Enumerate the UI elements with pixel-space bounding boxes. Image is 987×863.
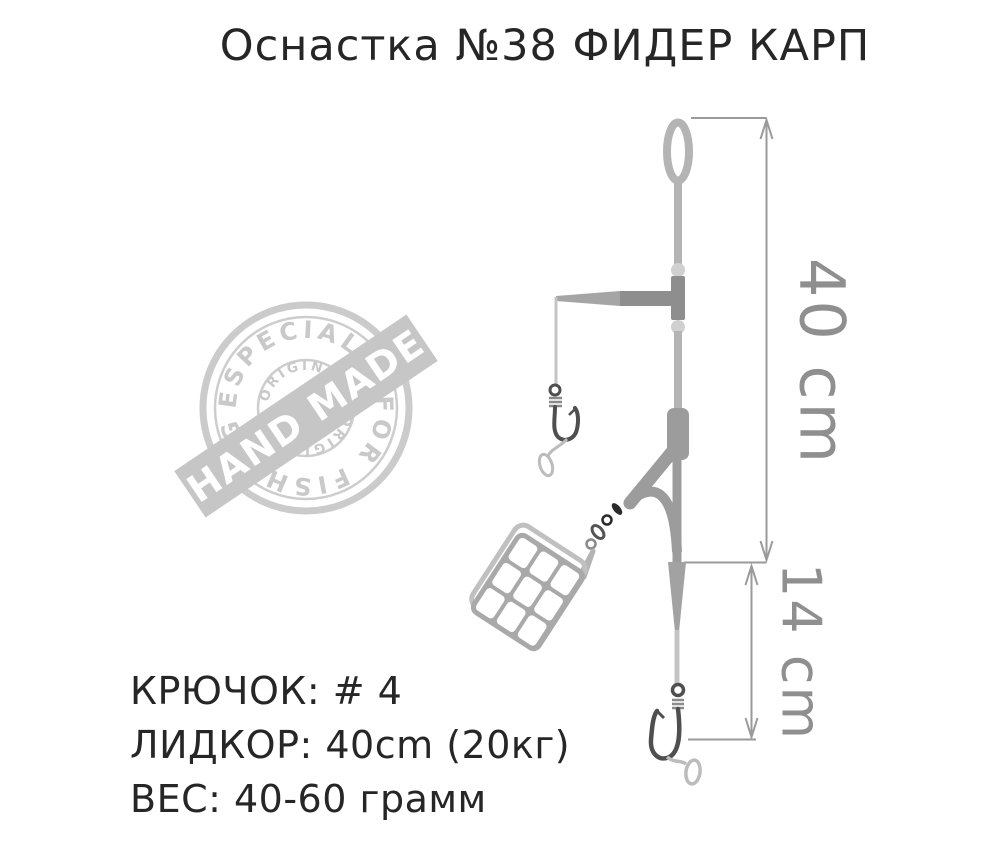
hook-barb bbox=[569, 409, 575, 415]
specs-block: КРЮЧОК: # 4 ЛИДКОР: 40cm (20кг) ВЕС: 40-… bbox=[130, 664, 570, 826]
anti-tangle-cone bbox=[556, 291, 620, 306]
page: Оснастка №38 ФИДЕР КАРП ESPECIALLY FOR F… bbox=[0, 0, 987, 863]
feeder-swivel-chain bbox=[587, 501, 625, 548]
anti-tangle-arch bbox=[632, 492, 677, 552]
side-hook bbox=[537, 385, 578, 477]
t-swivel-body bbox=[671, 276, 685, 320]
hook-barb bbox=[657, 711, 664, 718]
hook-bend bbox=[651, 709, 679, 758]
rig-main-line bbox=[556, 123, 689, 687]
swivel-ring bbox=[603, 516, 612, 525]
handmade-stamp: ESPECIALLY FOR FISHING ORIGINAL ORIGINAL… bbox=[174, 304, 437, 518]
hook-whipping bbox=[549, 398, 562, 406]
snap-clip bbox=[610, 501, 624, 516]
stop-bead-top bbox=[671, 263, 685, 277]
hook-bend bbox=[554, 407, 578, 440]
bottom-hook bbox=[651, 685, 702, 785]
hair-loop bbox=[684, 759, 701, 785]
hook-eye bbox=[550, 385, 560, 395]
top-loop bbox=[667, 123, 689, 181]
hook-eye bbox=[673, 685, 684, 696]
spec-leadcore: ЛИДКОР: 40cm (20кг) bbox=[130, 718, 570, 772]
spec-weight: ВЕС: 40-60 грамм bbox=[130, 772, 570, 826]
dimension-label-14cm: 14 cm bbox=[770, 563, 833, 741]
leader-taper bbox=[668, 562, 686, 632]
swivel-barrel bbox=[590, 523, 607, 540]
t-swivel-arm bbox=[620, 291, 673, 306]
dimension-lines bbox=[684, 118, 773, 740]
dimension-label-40cm: 40 cm bbox=[786, 258, 859, 466]
hair-loop bbox=[537, 453, 555, 478]
feeder-cage bbox=[464, 521, 593, 654]
hair-line bbox=[667, 757, 686, 764]
hair-line bbox=[548, 439, 567, 456]
swivel-eye bbox=[587, 540, 596, 549]
spec-hook: КРЮЧОК: # 4 bbox=[130, 664, 570, 718]
